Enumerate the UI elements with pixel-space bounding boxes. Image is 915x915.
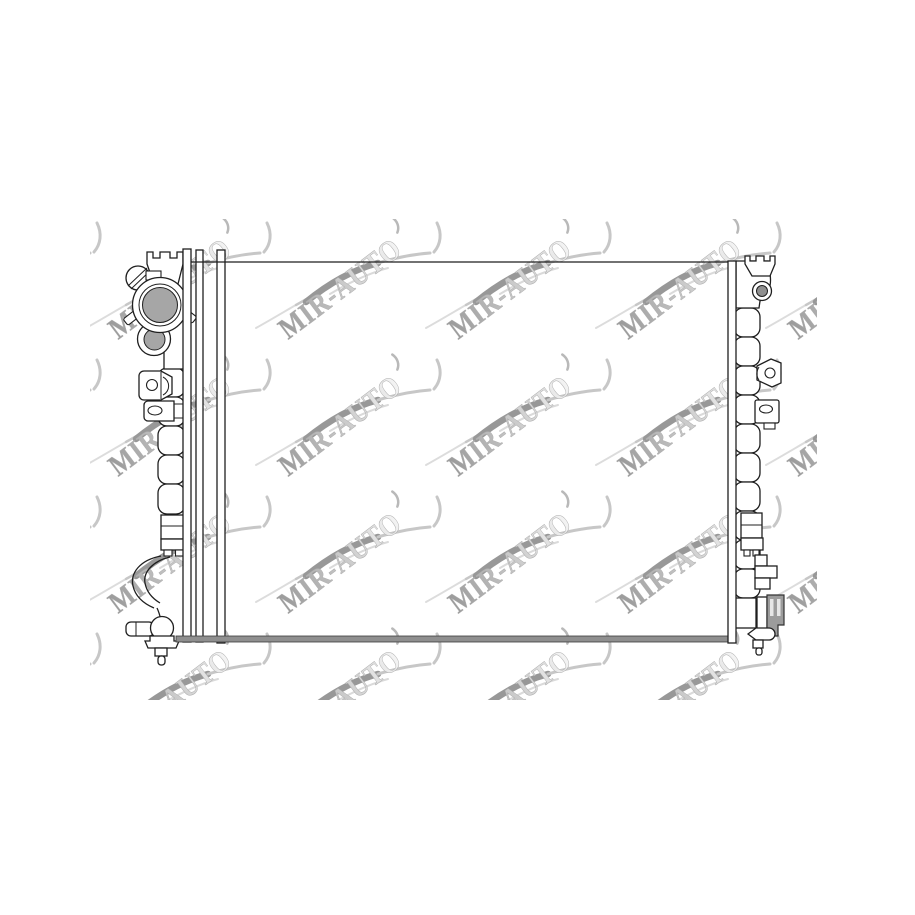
radiator-line-drawing: [0, 0, 915, 915]
drain-wing: [145, 636, 179, 648]
core-bottom-bar: [176, 636, 732, 642]
right-bracket-oval-hole: [755, 400, 779, 429]
left-side-plate: [217, 250, 225, 643]
left-drain-assembly: [126, 617, 179, 666]
left-bracket-round-hole: [139, 371, 172, 400]
left-neck-segment: [164, 351, 185, 369]
right-tank-bottom: [734, 598, 756, 628]
right-drain-plug: [748, 628, 775, 655]
left-inner-channel: [196, 250, 203, 642]
radiator-core: [176, 262, 732, 642]
product-image-canvas: MIR-AUTO MIR-AUTO MIR-AUTO: [0, 0, 915, 915]
drain-tip: [158, 656, 165, 665]
drain-stem: [155, 648, 167, 656]
right-tank: [734, 256, 784, 655]
right-crown-clip: [745, 256, 775, 276]
right-tank-joint-strip: [728, 261, 736, 643]
drain-arm: [126, 622, 154, 636]
lower-hose: [132, 556, 170, 620]
right-stepped-clip: [755, 555, 777, 589]
left-tank-joint-strip: [183, 249, 191, 642]
right-port: [753, 282, 772, 301]
right-bottom-block: [741, 513, 763, 556]
